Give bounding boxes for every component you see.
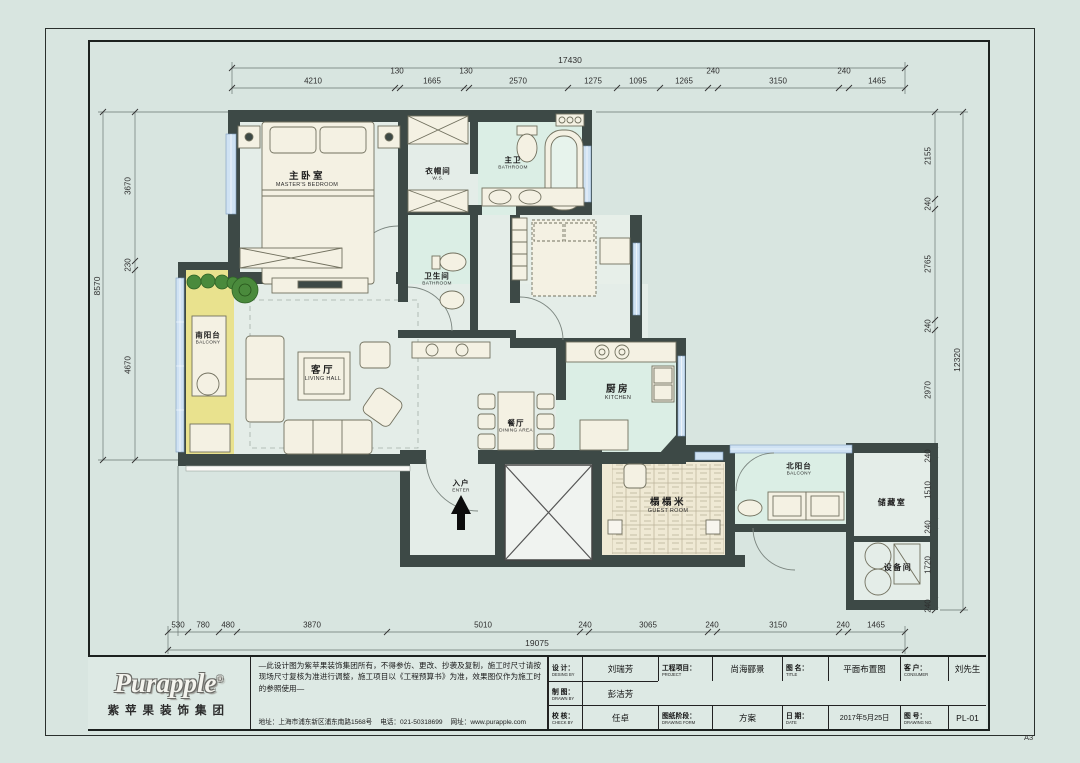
dim-label: 240 <box>924 197 933 210</box>
dim-label: 1275 <box>584 77 602 86</box>
room-name-en: LIVING HALL <box>305 376 342 383</box>
room-name-cn: 储藏室 <box>878 498 907 508</box>
value: 任卓 <box>612 712 629 724</box>
room-name-en: DINING AREA <box>499 428 533 434</box>
room-label-entry: 入户 ENTER <box>452 479 470 494</box>
room-name-cn: 主卫 <box>498 156 529 165</box>
dim-label: 8570 <box>92 277 102 296</box>
label-cn: 工程项目： <box>662 662 696 672</box>
label-cn: 图 名： <box>786 662 808 672</box>
room-label-equipment: 设备间 <box>884 563 913 573</box>
dim-label: 4210 <box>304 77 322 86</box>
label-cn: 设 计： <box>552 662 574 672</box>
dim-label: 480 <box>221 621 234 630</box>
room-label-cloakroom: 衣帽间 W.S. <box>425 167 451 182</box>
label-cn: 制 图： <box>552 686 574 696</box>
dim-label: 240 <box>924 520 933 533</box>
field-drawingno-value: PL-01 <box>948 705 986 729</box>
dim-label: 240 <box>837 67 850 76</box>
label-cn: 图纸阶段： <box>662 710 696 720</box>
room-label-bathroom: 卫生间 BATHROOM <box>422 272 453 287</box>
value: 彭洁芳 <box>608 688 634 700</box>
room-label-living: 客厅 LIVING HALL <box>304 365 342 383</box>
field-drawingno-label: 图 号： DRAWING NO. <box>900 705 948 729</box>
room-name-en: BALCONY <box>196 340 221 346</box>
value: 平面布置图 <box>843 663 886 675</box>
field-customer-value: 刘先生 <box>948 657 986 681</box>
room-name-en: BALCONY <box>787 471 812 477</box>
room-name-cn: 主卧室 <box>274 171 340 182</box>
disclaimer-text: —此设计图为紫苹果装饰集团所有，不得参仿、更改、抄袭及复制，施工时尺寸请按现场尺… <box>259 660 541 694</box>
logo-wordmark: Purapple® <box>114 668 223 699</box>
title-block-table: 设 计： DESING BY 刘瑞芳 制 图： DRAWN BY 彭洁芳 校 核… <box>548 657 986 729</box>
field-drawn-value: 彭洁芳 <box>582 681 658 705</box>
dim-label: 240 <box>924 319 933 332</box>
value: 刘先生 <box>955 663 981 675</box>
dim-label: 230 <box>124 258 133 271</box>
room-name-en: KITCHEN <box>605 395 631 402</box>
room-name-en: BATHROOM <box>498 165 527 171</box>
field-design-label: 设 计： DESING BY <box>548 657 582 681</box>
copyright-note: —此设计图为紫苹果装饰集团所有，不得参仿、更改、抄袭及复制，施工时尺寸请按现场尺… <box>251 657 548 729</box>
value: 2017年5月25日 <box>840 713 890 723</box>
room-label-storage: 储藏室 <box>878 498 907 508</box>
field-drawn-label: 制 图： DRAWN BY <box>548 681 582 705</box>
dim-label: 2155 <box>924 147 933 165</box>
room-name-cn: 设备间 <box>884 563 913 573</box>
field-stage-value: 方案 <box>712 705 782 729</box>
room-name-en: W.S. <box>426 176 450 182</box>
dim-label: 4670 <box>124 356 133 374</box>
dim-label: 780 <box>196 621 209 630</box>
label-en: PROJECT <box>662 672 681 677</box>
label-en: DRAWN BY <box>552 696 574 701</box>
label-en: DRAWING FORM <box>662 720 695 725</box>
field-title-label: 图 名： TITLE <box>782 657 828 681</box>
paper-size-label: A3 <box>1024 733 1033 742</box>
field-stage-label: 图纸阶段： DRAWING FORM <box>658 705 712 729</box>
label-cn: 图 号： <box>904 710 926 720</box>
room-name-cn: 厨房 <box>604 384 632 395</box>
dim-label: 2765 <box>924 255 933 273</box>
dim-label: 240 <box>705 621 718 630</box>
room-name-en: BATHROOM <box>422 281 451 287</box>
logo-text: Purapple <box>114 668 216 698</box>
room-name-cn: 榻榻米 <box>647 497 690 508</box>
dim-label: 1095 <box>629 77 647 86</box>
dim-label: 1265 <box>675 77 693 86</box>
dim-label: 2570 <box>509 77 527 86</box>
dim-label: 3150 <box>769 621 787 630</box>
field-project-value: 尚海郦景 <box>712 657 782 681</box>
company-website: 网址：www.purapple.com <box>451 716 527 726</box>
room-label-dining: 餐厅 DINING AREA <box>498 419 534 434</box>
value: 方案 <box>739 712 756 724</box>
field-check-label: 校 核： CHECK BY <box>548 705 582 729</box>
room-label-master-bath: 主卫 BATHROOM <box>498 156 529 171</box>
contact-line: 地址：上海市浦东新区浦东南路1568号 电话：021-50318699 网址：w… <box>259 716 541 727</box>
room-name-en: ENTER <box>452 488 470 494</box>
room-name-cn: 入户 <box>452 479 470 488</box>
dim-label: 530 <box>171 621 184 630</box>
label-en: DATE <box>786 720 797 725</box>
room-label-kitchen: 厨房 KITCHEN <box>604 384 632 402</box>
room-label-south-balcony: 南阳台 BALCONY <box>195 331 221 346</box>
floor-plan-svg <box>0 0 1080 763</box>
drawing-sheet: 主卧室 MASTER'S BEDROOM 衣帽间 W.S. 主卫 BATHROO… <box>0 0 1080 763</box>
label-en: DRAWING NO. <box>904 720 932 725</box>
room-label-tatami: 榻榻米 GUEST ROOM <box>647 497 690 515</box>
company-address: 地址：上海市浦东新区浦东南路1568号 <box>259 716 373 726</box>
dim-label: 19075 <box>525 638 549 648</box>
title-block: Purapple® 紫苹果装饰集团 —此设计图为紫苹果装饰集团所有，不得参仿、更… <box>88 655 986 729</box>
dim-label: 240 <box>924 599 933 612</box>
dim-label: 240 <box>924 449 933 462</box>
dim-label: 5010 <box>474 621 492 630</box>
dim-label: 3065 <box>639 621 657 630</box>
dim-label: 1465 <box>867 621 885 630</box>
field-title-value: 平面布置图 <box>828 657 900 681</box>
dim-label: 1720 <box>924 556 933 574</box>
room-name-cn: 衣帽间 <box>425 167 451 176</box>
elevator-shaft <box>505 465 592 560</box>
label-en: CHECK BY <box>552 720 573 725</box>
company-phone: 电话：021-50318699 <box>380 716 442 726</box>
company-logo: Purapple® 紫苹果装饰集团 <box>88 657 251 729</box>
room-name-cn: 北阳台 <box>786 462 812 471</box>
dim-label: 3670 <box>124 177 133 195</box>
registered-mark: ® <box>216 674 223 684</box>
room-label-master-bedroom: 主卧室 MASTER'S BEDROOM <box>274 171 340 189</box>
label-cn: 日 期： <box>786 710 808 720</box>
field-project-label: 工程项目： PROJECT <box>658 657 712 681</box>
value: PL-01 <box>956 713 979 723</box>
dim-label: 1510 <box>924 481 933 499</box>
dim-label: 12320 <box>952 348 962 372</box>
dim-label: 3870 <box>303 621 321 630</box>
value: 刘瑞芳 <box>608 663 634 675</box>
field-design-value: 刘瑞芳 <box>582 657 658 681</box>
dim-label: 130 <box>390 67 403 76</box>
label-en: CONSUMER <box>904 672 928 677</box>
dim-label: 17430 <box>558 55 582 65</box>
dim-label: 1665 <box>423 77 441 86</box>
room-name-cn: 卫生间 <box>422 272 453 281</box>
room-label-north-balcony: 北阳台 BALCONY <box>786 462 812 477</box>
dim-label: 130 <box>459 67 472 76</box>
field-customer-label: 客 户： CONSUMER <box>900 657 948 681</box>
dim-label: 240 <box>706 67 719 76</box>
label-en: DESING BY <box>552 672 575 677</box>
field-date-label: 日 期： DATE <box>782 705 828 729</box>
dim-label: 240 <box>578 621 591 630</box>
value: 尚海郦景 <box>730 663 764 675</box>
label-en: TITLE <box>786 672 797 677</box>
company-name: 紫苹果装饰集团 <box>108 702 231 718</box>
label-cn: 客 户： <box>904 662 926 672</box>
dim-label: 240 <box>836 621 849 630</box>
dim-label: 3150 <box>769 77 787 86</box>
label-cn: 校 核： <box>552 710 574 720</box>
field-date-value: 2017年5月25日 <box>828 705 900 729</box>
room-name-cn: 南阳台 <box>195 331 221 340</box>
room-name-en: GUEST ROOM <box>648 508 688 515</box>
room-name-en: MASTER'S BEDROOM <box>276 182 338 189</box>
room-name-cn: 餐厅 <box>498 419 534 428</box>
dim-label: 1465 <box>868 77 886 86</box>
field-check-value: 任卓 <box>582 705 658 729</box>
dim-label: 2970 <box>924 381 933 399</box>
room-name-cn: 客厅 <box>304 365 342 376</box>
